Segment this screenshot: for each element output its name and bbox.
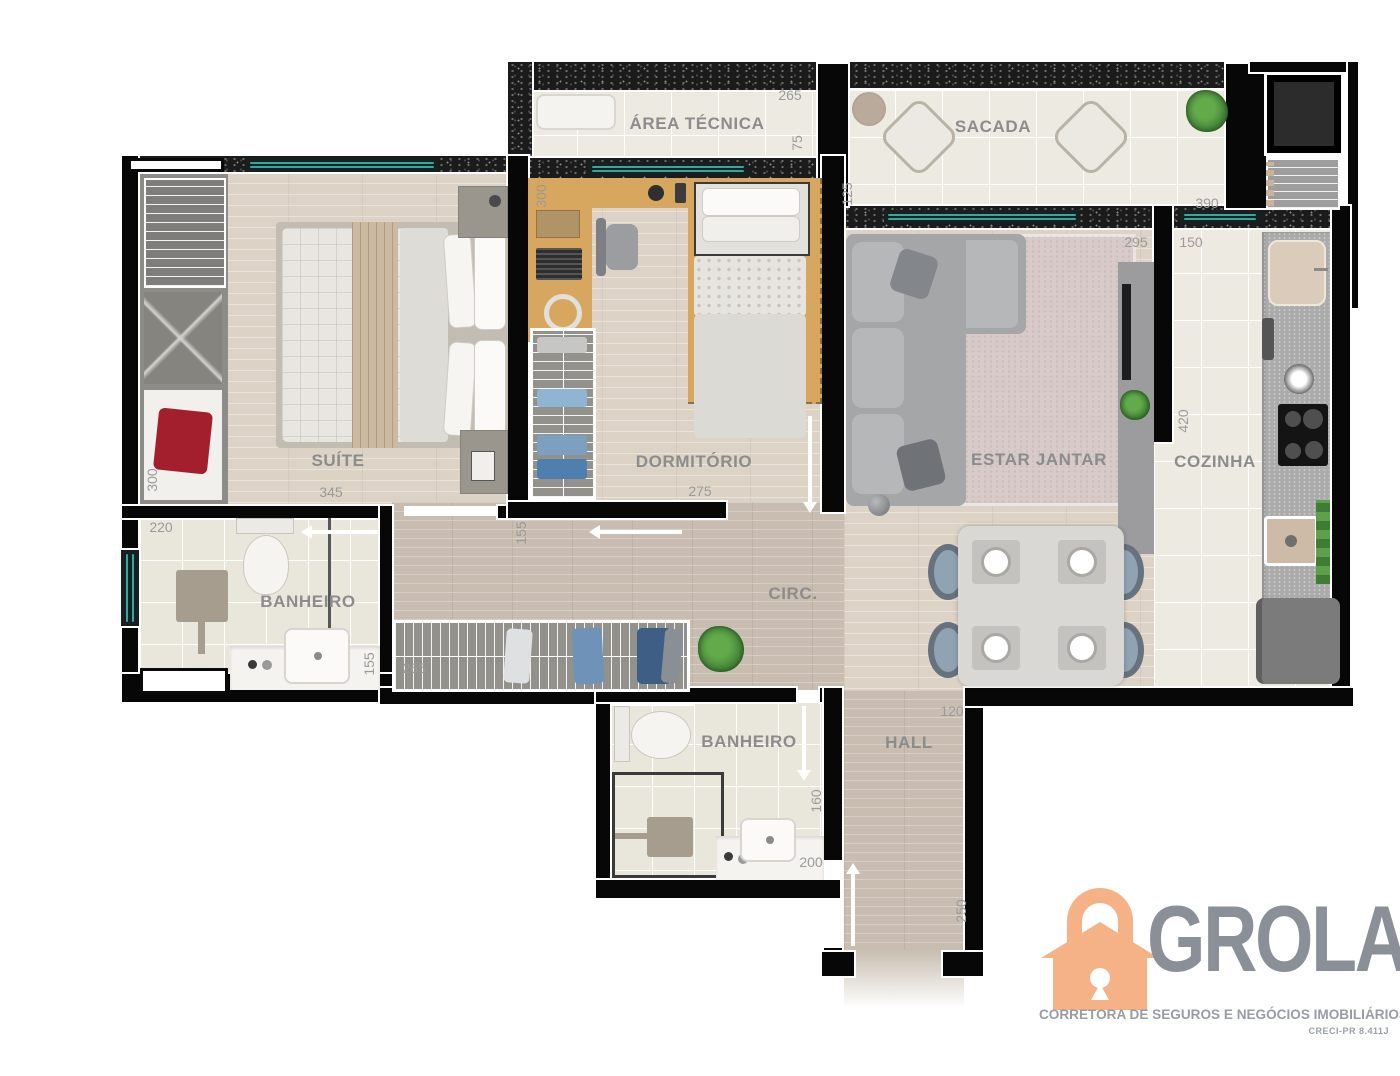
dim-suite-width: 345 bbox=[319, 484, 342, 500]
dim-sacada-width: 390 bbox=[1195, 195, 1218, 211]
keyhole-icon bbox=[1091, 984, 1109, 1000]
dim-cozinha-depth: 420 bbox=[1175, 409, 1191, 432]
double-bed bbox=[276, 222, 508, 448]
dim-circulation-closet: 265 bbox=[402, 660, 425, 676]
sofa-body bbox=[846, 234, 966, 506]
laptop bbox=[536, 248, 582, 280]
toilet bbox=[236, 518, 294, 534]
house-roof-icon bbox=[1041, 922, 1159, 958]
window bbox=[121, 550, 139, 626]
side-table-round bbox=[852, 92, 886, 126]
wall-segment bbox=[120, 154, 140, 550]
dining-table bbox=[958, 526, 1124, 686]
headphones bbox=[544, 294, 582, 332]
drying-rack bbox=[1266, 158, 1340, 210]
tv bbox=[1122, 284, 1131, 380]
room-label-banheiro-social: BANHEIRO bbox=[701, 732, 796, 752]
grola-logo: GROLA CORRETORA DE SEGUROS E NEGÓCIOS IM… bbox=[1035, 884, 1395, 1069]
tv-panel bbox=[1118, 262, 1154, 554]
wall-segment bbox=[1152, 204, 1174, 444]
wall-segment bbox=[506, 500, 728, 520]
wall-segment bbox=[832, 60, 1268, 90]
kitchen-counter bbox=[1262, 232, 1330, 600]
desk-side bbox=[528, 208, 592, 342]
vanity-sink bbox=[740, 818, 796, 862]
window bbox=[588, 162, 748, 176]
dim-dormitorio-width: 275 bbox=[688, 483, 711, 499]
window bbox=[884, 210, 1080, 224]
single-bed-platform bbox=[688, 178, 822, 404]
dim-suite-closet: 300 bbox=[144, 468, 160, 491]
dim-area-tecnica-depth: 75 bbox=[789, 135, 805, 151]
cooktop bbox=[1278, 404, 1328, 466]
wall-segment bbox=[963, 686, 985, 978]
water-heater bbox=[536, 94, 616, 130]
wall-segment bbox=[594, 878, 842, 900]
dim-dormitorio-desk: 300 bbox=[533, 184, 549, 207]
wall-segment bbox=[594, 686, 612, 898]
shower-head bbox=[176, 570, 228, 622]
dim-banheiro-suite-width: 220 bbox=[149, 519, 172, 535]
door-swing-arrow bbox=[600, 530, 682, 534]
dim-hall-depth: 250 bbox=[953, 899, 969, 922]
red-garment bbox=[153, 407, 213, 474]
prep-sink bbox=[1264, 516, 1318, 566]
dormitorio-closet bbox=[530, 328, 596, 500]
wall-segment bbox=[822, 686, 844, 862]
place-setting bbox=[972, 540, 1020, 584]
door-swing-arrow bbox=[802, 706, 806, 770]
dim-banheiro-social-width: 200 bbox=[799, 854, 822, 870]
shaft-box bbox=[1264, 72, 1344, 156]
wall-segment bbox=[820, 950, 856, 978]
utensil-holder bbox=[1262, 318, 1274, 360]
brand-tagline: CORRETORA DE SEGUROS E NEGÓCIOS IMOBILIÁ… bbox=[1039, 1006, 1380, 1022]
wall-niche bbox=[140, 668, 228, 694]
floor-hall bbox=[844, 690, 964, 952]
plant bbox=[1186, 90, 1228, 132]
room-label-cozinha: COZINHA bbox=[1174, 452, 1256, 472]
wall-segment bbox=[506, 154, 530, 520]
brand-license: CRECI-PR 8.411J bbox=[1308, 1026, 1389, 1036]
dim-banheiro-suite-counter: 155 bbox=[361, 652, 377, 675]
vanity-sink bbox=[284, 628, 350, 684]
room-label-estar-jantar: ESTAR JANTAR bbox=[971, 450, 1107, 470]
nightstand bbox=[458, 186, 508, 238]
herb-planter bbox=[1316, 500, 1330, 584]
door-swing-arrow bbox=[808, 416, 812, 502]
room-label-area-tecnica: ÁREA TÉCNICA bbox=[629, 114, 764, 134]
door-swing-arrow bbox=[312, 530, 378, 534]
floor-plan: ÁREA TÉCNICA SACADA SUÍTE DORMITÓRIO EST… bbox=[0, 0, 1400, 1076]
dim-area-tecnica-width: 265 bbox=[778, 87, 801, 103]
room-label-dormitorio: DORMITÓRIO bbox=[636, 452, 753, 472]
room-label-hall: HALL bbox=[885, 733, 933, 753]
nightstand bbox=[460, 430, 508, 494]
suite-closet bbox=[140, 174, 228, 504]
place-setting bbox=[972, 626, 1020, 670]
dim-banheiro-social-depth: 160 bbox=[808, 789, 824, 812]
room-label-banheiro-suite: BANHEIRO bbox=[260, 592, 355, 612]
window bbox=[1180, 210, 1260, 224]
wall-niche bbox=[128, 158, 224, 172]
door-swing-arrow bbox=[851, 874, 855, 946]
room-label-circulacao: CIRC. bbox=[768, 584, 817, 604]
place-setting bbox=[1058, 540, 1106, 584]
desk-chair bbox=[596, 218, 640, 276]
desk-top bbox=[528, 178, 690, 208]
wall-segment bbox=[963, 686, 1355, 708]
window bbox=[246, 158, 438, 172]
dim-cozinha-width: 150 bbox=[1179, 234, 1202, 250]
toilet bbox=[614, 706, 630, 762]
dim-estar-width: 295 bbox=[1124, 234, 1147, 250]
dim-hall-width: 120 bbox=[940, 703, 963, 719]
plant bbox=[698, 626, 744, 672]
brand-name: GROLA bbox=[1147, 892, 1400, 986]
room-label-suite: SUÍTE bbox=[311, 451, 364, 471]
circulation-closet bbox=[392, 620, 690, 692]
dim-sacada-depth: 125 bbox=[839, 182, 855, 205]
place-setting bbox=[1058, 626, 1106, 670]
room-label-sacada: SACADA bbox=[955, 117, 1031, 137]
shower-enclosure bbox=[612, 772, 724, 878]
fridge bbox=[1256, 598, 1340, 684]
wall-segment bbox=[1224, 62, 1268, 210]
door-leaf bbox=[404, 506, 496, 516]
wall-segment bbox=[941, 950, 985, 978]
wall-segment bbox=[820, 154, 846, 514]
kitchen-sink bbox=[1268, 240, 1326, 306]
dim-dormitorio-door: 155 bbox=[513, 521, 529, 544]
floor-lamp bbox=[868, 494, 890, 516]
coffee-maker bbox=[1284, 364, 1314, 394]
shower-head bbox=[647, 817, 693, 857]
